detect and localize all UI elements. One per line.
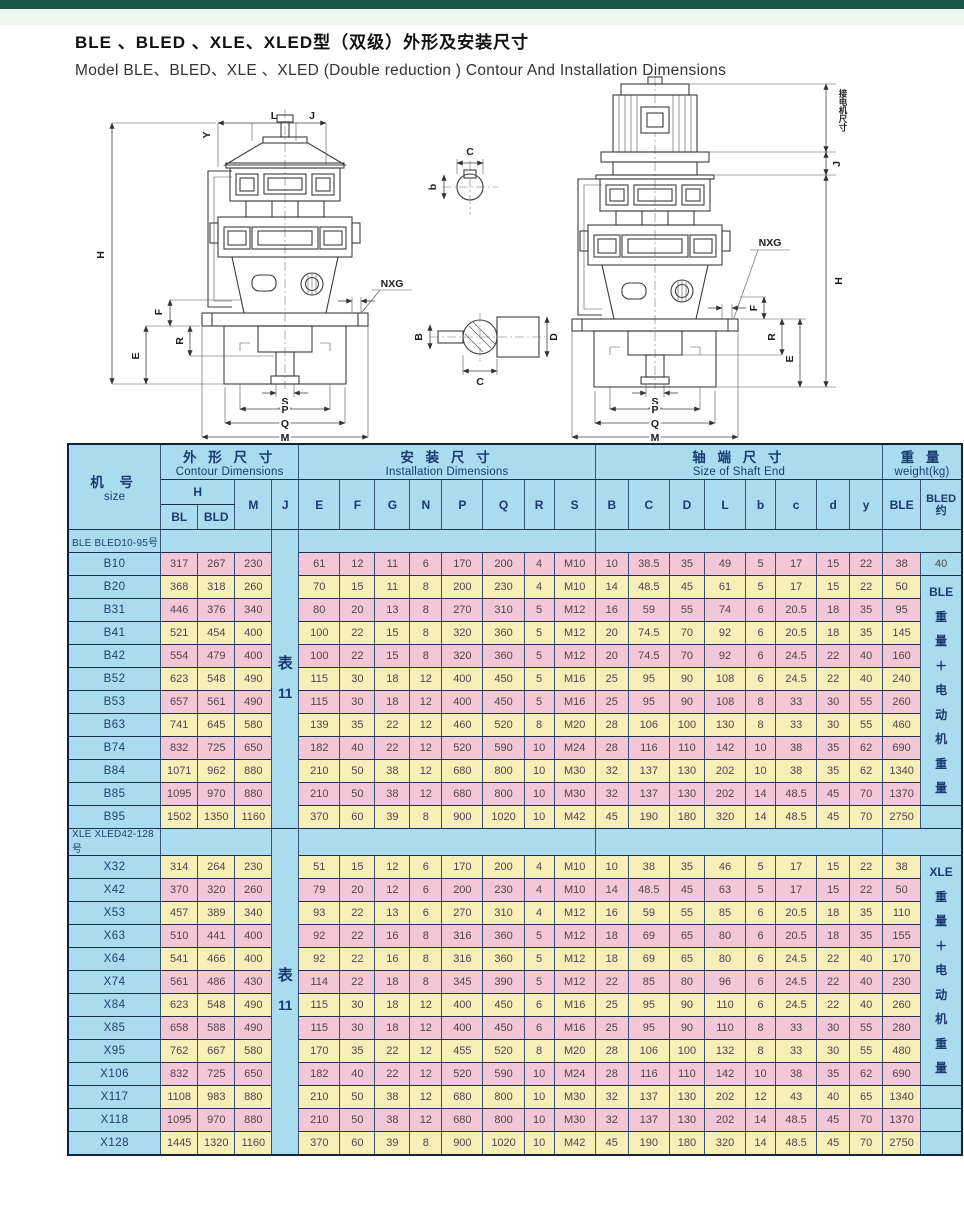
data-cell: 1020 <box>483 806 524 829</box>
table-row: X4237032026079201262002304M101448.545635… <box>68 879 962 902</box>
data-cell: 5 <box>746 856 776 879</box>
data-cell: 741 <box>161 714 198 737</box>
data-cell: 12 <box>410 1063 442 1086</box>
data-cell: 880 <box>235 760 272 783</box>
data-cell: 35 <box>669 553 704 576</box>
data-cell: 280 <box>883 1017 921 1040</box>
data-cell: 74.5 <box>628 622 669 645</box>
data-cell: 320 <box>704 806 745 829</box>
data-cell: 762 <box>161 1040 198 1063</box>
data-cell: 370 <box>299 806 340 829</box>
data-cell: 800 <box>483 783 524 806</box>
data-cell: 115 <box>299 691 340 714</box>
data-cell: 645 <box>198 714 235 737</box>
data-cell: 14 <box>746 1132 776 1155</box>
header-size: 机 号 size <box>68 444 161 530</box>
data-cell: 110 <box>883 902 921 925</box>
header-contour-en: Contour Dimensions <box>161 466 298 478</box>
data-cell: 22 <box>817 645 850 668</box>
data-cell: 50 <box>340 760 375 783</box>
data-cell: 900 <box>442 1132 483 1155</box>
data-cell: 14 <box>746 783 776 806</box>
data-cell: 50 <box>340 783 375 806</box>
data-cell: 16 <box>375 948 410 971</box>
data-cell: 40 <box>850 994 883 1017</box>
data-cell: 95 <box>628 668 669 691</box>
data-cell: 170 <box>299 1040 340 1063</box>
data-cell: 12 <box>410 1040 442 1063</box>
data-cell: 8 <box>410 645 442 668</box>
data-cell: 137 <box>628 1109 669 1132</box>
blank-cell <box>883 530 962 553</box>
data-cell: 100 <box>669 714 704 737</box>
dim-label-D-output: D <box>548 333 560 341</box>
data-cell: 30 <box>340 691 375 714</box>
data-cell: 1502 <box>161 806 198 829</box>
data-cell: M16 <box>554 668 595 691</box>
data-cell: 22 <box>850 576 883 599</box>
dim-label-p-left: P <box>281 404 288 416</box>
data-cell: 116 <box>628 1063 669 1086</box>
data-cell: 318 <box>198 576 235 599</box>
table-row: X10683272565018240221252059010M242811611… <box>68 1063 962 1086</box>
dim-label-C-output: C <box>476 376 484 388</box>
row-size-label: B41 <box>68 622 161 645</box>
row-size-label: X128 <box>68 1132 161 1155</box>
input-shaft-end-detail: C b <box>427 146 498 215</box>
data-cell: 10 <box>524 1063 554 1086</box>
data-cell: M10 <box>554 576 595 599</box>
header-size-zh: 机 号 <box>69 471 160 491</box>
row-size-label: X117 <box>68 1086 161 1109</box>
data-cell: 40 <box>817 1086 850 1109</box>
data-cell: 590 <box>483 1063 524 1086</box>
data-cell: 10 <box>746 1063 776 1086</box>
data-cell: 40 <box>850 645 883 668</box>
data-cell: 4 <box>524 553 554 576</box>
data-cell: 70 <box>850 1109 883 1132</box>
data-cell: M12 <box>554 948 595 971</box>
header-size-en: size <box>69 491 160 503</box>
data-cell: 92 <box>704 645 745 668</box>
data-cell: 623 <box>161 994 198 1017</box>
data-cell: 548 <box>198 994 235 1017</box>
row-size-label: X95 <box>68 1040 161 1063</box>
data-cell: 11 <box>375 553 410 576</box>
data-cell: M12 <box>554 622 595 645</box>
data-cell: 588 <box>198 1017 235 1040</box>
data-cell: 320 <box>442 645 483 668</box>
output-shaft-end-detail: B D C <box>413 313 560 388</box>
data-cell: 8 <box>410 599 442 622</box>
dim-label-b-input: b <box>427 184 439 190</box>
column-header-B: B <box>595 480 628 530</box>
data-cell: 561 <box>198 691 235 714</box>
data-cell: 580 <box>235 1040 272 1063</box>
data-cell: 521 <box>161 622 198 645</box>
data-cell: 6 <box>746 668 776 691</box>
data-cell: M20 <box>554 714 595 737</box>
data-cell: 5 <box>524 948 554 971</box>
data-cell: 200 <box>483 553 524 576</box>
data-cell: 389 <box>198 902 235 925</box>
data-cell: 1370 <box>883 1109 921 1132</box>
dim-label-nxg-right: NXG <box>759 237 782 249</box>
data-cell: 30 <box>340 994 375 1017</box>
data-cell: 317 <box>161 553 198 576</box>
data-cell: 95 <box>628 1017 669 1040</box>
data-cell: 580 <box>235 714 272 737</box>
data-cell: 270 <box>442 902 483 925</box>
data-cell: 35 <box>817 737 850 760</box>
column-header-D: D <box>669 480 704 530</box>
dim-label-motor-connect: 接电机尺寸 <box>838 88 848 132</box>
data-cell: 800 <box>483 760 524 783</box>
data-cell: 16 <box>595 599 628 622</box>
data-cell: 137 <box>628 1086 669 1109</box>
data-cell: 450 <box>483 1017 524 1040</box>
data-cell: 92 <box>299 948 340 971</box>
data-cell: 10 <box>524 1086 554 1109</box>
data-cell: 200 <box>483 856 524 879</box>
data-cell: 490 <box>235 994 272 1017</box>
blank-cell <box>299 829 596 856</box>
row-size-label: B42 <box>68 645 161 668</box>
data-cell: 30 <box>817 1017 850 1040</box>
data-cell: 33 <box>775 714 816 737</box>
data-cell: 6 <box>524 1017 554 1040</box>
dim-label-j-right: J <box>831 161 843 167</box>
data-cell: 18 <box>817 622 850 645</box>
data-cell: 5 <box>524 599 554 622</box>
data-cell: 400 <box>442 1017 483 1040</box>
data-cell: 48.5 <box>775 783 816 806</box>
data-cell: 460 <box>442 714 483 737</box>
data-cell: 680 <box>442 783 483 806</box>
row-size-label: X118 <box>68 1109 161 1132</box>
data-cell: 800 <box>483 1086 524 1109</box>
data-cell: 657 <box>161 691 198 714</box>
header-weight: 重 量 weight(kg) <box>883 444 962 480</box>
data-cell: 110 <box>704 1017 745 1040</box>
dim-label-e-left: E <box>130 352 142 359</box>
data-cell: 4 <box>524 902 554 925</box>
data-cell: 6 <box>746 994 776 1017</box>
data-cell: 100 <box>669 1040 704 1063</box>
data-cell: 60 <box>340 1132 375 1155</box>
section-divider-row: BLE BLED10-95号表11 <box>68 530 962 553</box>
data-cell: 455 <box>442 1040 483 1063</box>
dim-label-nxg-left: NXG <box>381 278 404 290</box>
data-cell: 832 <box>161 737 198 760</box>
data-cell: 38 <box>375 1086 410 1109</box>
data-cell: 10 <box>524 806 554 829</box>
data-cell: 108 <box>704 691 745 714</box>
data-cell: 20.5 <box>775 622 816 645</box>
data-cell: 12 <box>410 668 442 691</box>
data-cell: 38 <box>775 760 816 783</box>
data-cell: 95 <box>883 599 921 622</box>
column-header-BL: BL <box>161 505 198 530</box>
header-contour: 外 形 尺 寸 Contour Dimensions <box>161 444 299 480</box>
data-cell: 55 <box>850 714 883 737</box>
data-cell: 970 <box>198 1109 235 1132</box>
data-cell: 310 <box>483 599 524 622</box>
data-cell: 95 <box>628 691 669 714</box>
data-cell: 62 <box>850 760 883 783</box>
header-installation-en: Installation Dimensions <box>299 466 595 478</box>
data-cell: 65 <box>669 948 704 971</box>
data-cell: 5 <box>524 691 554 714</box>
data-cell: 20.5 <box>775 902 816 925</box>
data-cell: 314 <box>161 856 198 879</box>
data-cell: M12 <box>554 971 595 994</box>
data-cell: 200 <box>442 576 483 599</box>
data-cell: 39 <box>375 1132 410 1155</box>
data-cell: 55 <box>669 599 704 622</box>
data-cell: 1340 <box>883 1086 921 1109</box>
data-cell: 10 <box>595 856 628 879</box>
data-cell: 4 <box>524 879 554 902</box>
section-divider-row: XLE XLED42-128号表11 <box>68 829 962 856</box>
data-cell: 90 <box>669 1017 704 1040</box>
data-cell: 38 <box>883 553 921 576</box>
data-cell: 80 <box>704 948 745 971</box>
data-cell: 38.5 <box>628 553 669 576</box>
data-cell: 12 <box>375 856 410 879</box>
data-cell: M16 <box>554 1017 595 1040</box>
data-cell: 92 <box>704 622 745 645</box>
data-cell: 22 <box>340 948 375 971</box>
table-row: X118109597088021050381268080010M30321371… <box>68 1109 962 1132</box>
data-cell: 93 <box>299 902 340 925</box>
data-cell: 260 <box>235 576 272 599</box>
data-cell: 49 <box>704 553 745 576</box>
data-cell: 210 <box>299 783 340 806</box>
data-cell: 55 <box>669 902 704 925</box>
data-cell: 22 <box>375 737 410 760</box>
data-cell: 5 <box>524 668 554 691</box>
data-cell: 74.5 <box>628 645 669 668</box>
data-cell: 55 <box>850 1017 883 1040</box>
header-weight-zh: 重 量 <box>883 446 961 466</box>
data-cell: 12 <box>410 1109 442 1132</box>
data-cell: 12 <box>410 994 442 1017</box>
data-cell: 130 <box>669 760 704 783</box>
data-cell: 1160 <box>235 1132 272 1155</box>
data-cell: 100 <box>299 645 340 668</box>
data-cell: 35 <box>340 1040 375 1063</box>
data-cell: 650 <box>235 737 272 760</box>
data-cell: 63 <box>704 879 745 902</box>
data-cell: 6 <box>746 971 776 994</box>
data-cell: 17 <box>775 553 816 576</box>
data-cell: 15 <box>817 553 850 576</box>
column-header-Q: Q <box>483 480 524 530</box>
data-cell: 22 <box>817 971 850 994</box>
data-cell: 202 <box>704 1109 745 1132</box>
data-cell: 22 <box>340 971 375 994</box>
data-cell: 18 <box>375 971 410 994</box>
data-cell: 8 <box>746 1040 776 1063</box>
data-cell: 368 <box>161 576 198 599</box>
data-cell: 62 <box>850 1063 883 1086</box>
row-size-label: B85 <box>68 783 161 806</box>
data-cell: 20.5 <box>775 599 816 622</box>
data-cell: 400 <box>235 948 272 971</box>
data-cell: 800 <box>483 1109 524 1132</box>
top-green-bar <box>0 0 964 9</box>
data-cell: 210 <box>299 1109 340 1132</box>
data-cell: 22 <box>340 622 375 645</box>
data-cell: 18 <box>817 925 850 948</box>
data-cell: 667 <box>198 1040 235 1063</box>
data-cell: M24 <box>554 1063 595 1086</box>
data-cell: 1320 <box>198 1132 235 1155</box>
data-cell: 28 <box>595 714 628 737</box>
dim-label-c-input: C <box>466 146 474 158</box>
data-cell: 35 <box>850 622 883 645</box>
data-cell: 12 <box>410 691 442 714</box>
data-cell: 24.5 <box>775 971 816 994</box>
data-cell: 983 <box>198 1086 235 1109</box>
data-cell: 6 <box>410 856 442 879</box>
data-cell: 376 <box>198 599 235 622</box>
data-cell: 22 <box>817 948 850 971</box>
data-cell: 962 <box>198 760 235 783</box>
reducer-front-view: Y L J H F R E NXG S P Q M <box>95 109 412 443</box>
header-shaft-end: 轴 端 尺 寸 Size of Shaft End <box>595 444 882 480</box>
data-cell: 260 <box>235 879 272 902</box>
dim-label-q-right: Q <box>651 418 659 430</box>
data-cell: 18 <box>595 948 628 971</box>
data-cell: 30 <box>340 1017 375 1040</box>
data-cell: 320 <box>704 1132 745 1155</box>
data-cell: 441 <box>198 925 235 948</box>
data-cell: 25 <box>595 1017 628 1040</box>
data-cell: 480 <box>883 1040 921 1063</box>
data-cell: 680 <box>442 1109 483 1132</box>
row-size-label: X63 <box>68 925 161 948</box>
data-cell: 554 <box>161 645 198 668</box>
data-cell: 4 <box>524 856 554 879</box>
data-cell: 18 <box>817 599 850 622</box>
table-row: X12814451320116037060398900102010M424519… <box>68 1132 962 1155</box>
data-cell: 17 <box>775 879 816 902</box>
data-cell: 35 <box>850 599 883 622</box>
data-cell: 5 <box>524 925 554 948</box>
data-cell: 35 <box>340 714 375 737</box>
data-cell: 65 <box>850 1086 883 1109</box>
data-cell: 10 <box>524 1132 554 1155</box>
bled-weight-cell: 40 <box>921 553 962 576</box>
data-cell: 190 <box>628 806 669 829</box>
row-size-label: B10 <box>68 553 161 576</box>
table-row: B637416455801393522124605208M20281061001… <box>68 714 962 737</box>
column-header-L: L <box>704 480 745 530</box>
data-cell: 1340 <box>883 760 921 783</box>
data-cell: 316 <box>442 948 483 971</box>
weight-note: XLE重量＋电动机重量 <box>921 856 962 1086</box>
data-cell: 970 <box>198 783 235 806</box>
data-cell: 182 <box>299 737 340 760</box>
data-cell: 6 <box>524 994 554 1017</box>
column-header-R: R <box>524 480 554 530</box>
data-cell: 8 <box>746 714 776 737</box>
data-cell: 1350 <box>198 806 235 829</box>
dim-label-j-left: J <box>309 110 315 122</box>
data-cell: 370 <box>299 1132 340 1155</box>
data-cell: 30 <box>340 668 375 691</box>
data-cell: 360 <box>483 645 524 668</box>
data-cell: 38 <box>775 737 816 760</box>
data-cell: 190 <box>628 1132 669 1155</box>
column-header-P: P <box>442 480 483 530</box>
dim-label-y-left: Y <box>201 131 213 138</box>
data-cell: 110 <box>669 1063 704 1086</box>
column-header-S: S <box>554 480 595 530</box>
data-cell: 74 <box>704 599 745 622</box>
data-cell: 15 <box>375 622 410 645</box>
data-cell: 38 <box>775 1063 816 1086</box>
header-contour-zh: 外 形 尺 寸 <box>161 446 298 466</box>
data-cell: 35 <box>850 925 883 948</box>
data-cell: 14 <box>746 1109 776 1132</box>
data-cell: 8 <box>410 925 442 948</box>
row-size-label: X42 <box>68 879 161 902</box>
data-cell: 110 <box>704 994 745 1017</box>
data-cell: 658 <box>161 1017 198 1040</box>
data-cell: M42 <box>554 1132 595 1155</box>
data-cell: 116 <box>628 737 669 760</box>
data-cell: 450 <box>483 691 524 714</box>
data-cell: 202 <box>704 783 745 806</box>
data-cell: 55 <box>850 691 883 714</box>
data-cell: 360 <box>483 622 524 645</box>
data-cell: M12 <box>554 645 595 668</box>
data-cell: 10 <box>524 1109 554 1132</box>
data-cell: 450 <box>483 994 524 1017</box>
data-cell: 24.5 <box>775 948 816 971</box>
data-cell: 12 <box>410 1086 442 1109</box>
table-row: X6351044140092221683163605M1218696580620… <box>68 925 962 948</box>
data-cell: 22 <box>850 856 883 879</box>
data-cell: 6 <box>746 902 776 925</box>
data-cell: 35 <box>850 902 883 925</box>
data-cell: 142 <box>704 737 745 760</box>
data-cell: 20 <box>595 622 628 645</box>
data-cell: 130 <box>704 714 745 737</box>
data-cell: 15 <box>817 879 850 902</box>
data-cell: 17 <box>775 856 816 879</box>
data-cell: 45 <box>595 1132 628 1155</box>
data-cell: 16 <box>375 925 410 948</box>
data-cell: 270 <box>442 599 483 622</box>
data-cell: 400 <box>235 925 272 948</box>
data-cell: 520 <box>483 714 524 737</box>
data-cell: 10 <box>746 737 776 760</box>
data-cell: 11 <box>375 576 410 599</box>
data-cell: 35 <box>669 856 704 879</box>
data-cell: M30 <box>554 1086 595 1109</box>
table-row: X856585884901153018124004506M16259590110… <box>68 1017 962 1040</box>
data-cell: 490 <box>235 1017 272 1040</box>
data-cell: 12 <box>746 1086 776 1109</box>
data-cell: 70 <box>850 783 883 806</box>
data-cell: 18 <box>375 994 410 1017</box>
data-cell: 80 <box>299 599 340 622</box>
data-cell: 510 <box>161 925 198 948</box>
